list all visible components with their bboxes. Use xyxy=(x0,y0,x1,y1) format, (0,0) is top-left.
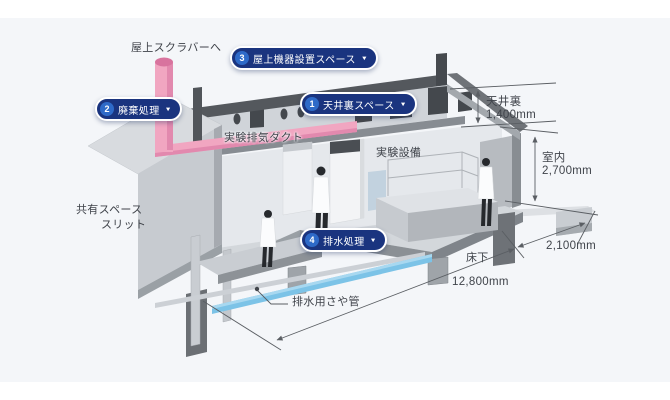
cabinet xyxy=(283,142,312,215)
button-label: 天井裏スペース xyxy=(323,97,395,112)
lab-cutaway-diagram: 屋上スクラバーへ 実験排気ダクト 実験設備 共有スペース スリット 排水用さや管… xyxy=(0,0,670,400)
caret-down-icon: ▼ xyxy=(361,55,368,61)
label-underfloor: 床下 xyxy=(466,252,489,265)
step-number-badge: 1 xyxy=(305,97,319,111)
step-number-badge: 2 xyxy=(100,102,114,116)
label-shared-space: 共有スペース xyxy=(76,204,142,217)
dim-right-overhang-text: 2,100mm xyxy=(546,240,596,253)
button-waste-processing[interactable]: 2 廃棄処理 ▼ xyxy=(95,97,182,121)
button-drainage-processing[interactable]: 4 排水処理 ▼ xyxy=(300,228,387,252)
button-rooftop-equipment-space[interactable]: 3 屋上機器設置スペース ▼ xyxy=(230,46,378,70)
button-label: 排水処理 xyxy=(323,233,365,248)
label-exhaust-duct: 実験排気ダクト xyxy=(224,132,303,145)
label-rooftop-scrubber: 屋上スクラバーへ xyxy=(131,42,221,55)
label-lab-equipment: 実験設備 xyxy=(376,147,421,160)
dim-total-length-text: 12,800mm xyxy=(452,276,509,289)
label-drain-sheath-pipe: 排水用さや管 xyxy=(292,296,360,309)
dim-ceiling-plenum-text: 天井裏 1,400mm xyxy=(486,96,536,122)
button-label: 廃棄処理 xyxy=(118,102,160,117)
support-post xyxy=(191,235,200,346)
dim-room-text: 室内 2,700mm xyxy=(542,152,592,178)
duct-opening xyxy=(155,58,173,67)
step-number-badge: 3 xyxy=(235,51,249,65)
button-ceiling-plenum-space[interactable]: 1 天井裏スペース ▼ xyxy=(300,92,417,116)
caret-down-icon: ▼ xyxy=(370,237,377,243)
label-slit: スリット xyxy=(101,219,146,232)
caret-down-icon: ▼ xyxy=(400,101,407,107)
roof-post xyxy=(436,53,447,86)
button-label: 屋上機器設置スペース xyxy=(253,51,356,66)
step-number-badge: 4 xyxy=(305,233,319,247)
caret-down-icon: ▼ xyxy=(165,106,172,112)
leader-dot xyxy=(255,287,259,291)
